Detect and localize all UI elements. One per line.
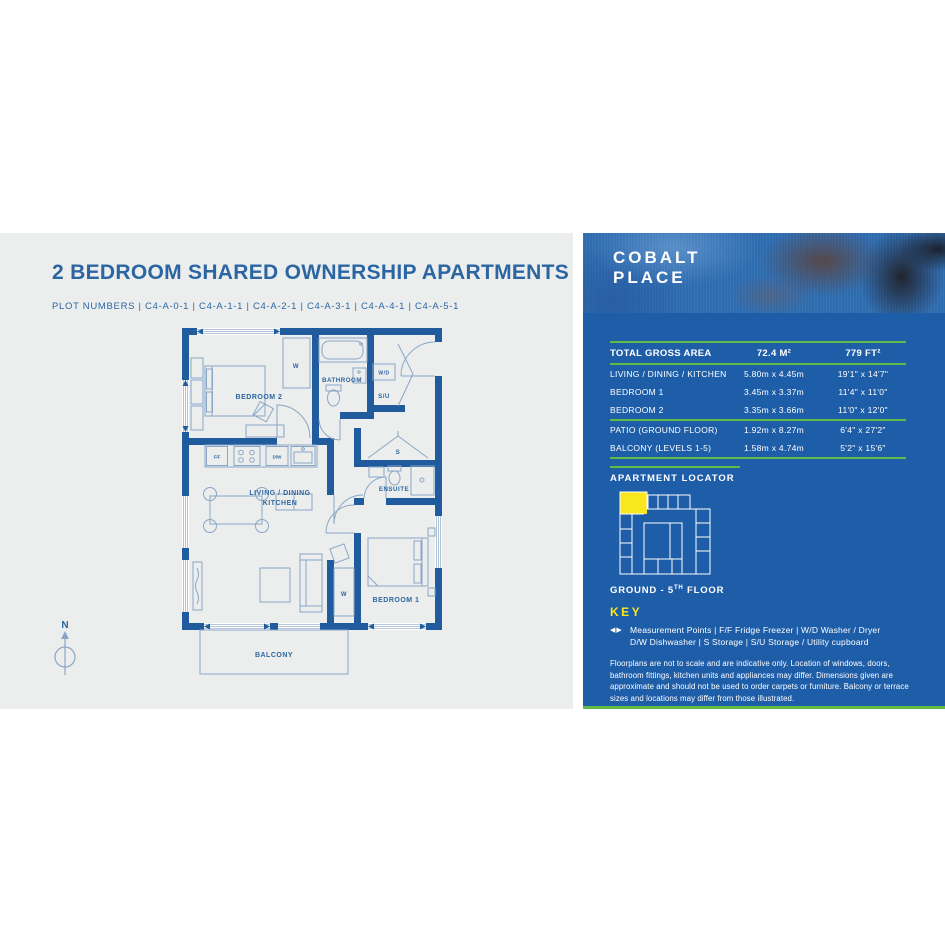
- page-title: 2 BEDROOM SHARED OWNERSHIP APARTMENTS: [52, 261, 569, 285]
- compass-north-label: N: [61, 620, 68, 631]
- brand-line-2: PLACE: [613, 268, 701, 288]
- table-header-imperial: 779 FT²: [820, 348, 906, 359]
- floor-plan: BEDROOM 2 BATHROOM W W/D S/U S ENSUITE L…: [182, 328, 462, 678]
- label-balcony: BALCONY: [255, 652, 293, 659]
- brand-line-1: COBALT: [613, 248, 701, 268]
- label-storage-utility: S/U: [378, 393, 390, 400]
- locator-divider: [610, 466, 740, 468]
- brand-name: COBALT PLACE: [613, 248, 701, 288]
- brand-header: COBALT PLACE: [583, 233, 945, 313]
- floor-range-label: GROUND - 5TH FLOOR: [610, 585, 724, 596]
- plot-numbers: PLOT NUMBERS | C4-A-0-1 | C4-A-1-1 | C4-…: [52, 301, 459, 312]
- info-panel: COBALT PLACE TOTAL GROSS AREA 72.4 M² 77…: [583, 233, 945, 709]
- key-line-2: D/W Dishwasher | S Storage | S/U Storage…: [630, 636, 880, 648]
- table-header-label: TOTAL GROSS AREA: [610, 348, 728, 359]
- table-row: BEDROOM 1 3.45m x 3.37m 11'4" x 11'0": [610, 383, 906, 401]
- label-fridge-freezer: F/F: [214, 455, 221, 460]
- label-storage: S: [396, 449, 401, 456]
- disclaimer-text: Floorplans are not to scale and are indi…: [610, 658, 912, 704]
- label-ensuite: ENSUITE: [379, 486, 409, 493]
- table-header-metric: 72.4 M²: [728, 348, 820, 359]
- key-heading: KEY: [610, 605, 642, 619]
- key-legend: ◀▶ Measurement Points | F/F Fridge Freez…: [610, 624, 880, 648]
- table-group-outdoor: PATIO (GROUND FLOOR) 1.92m x 8.27m 6'4" …: [610, 419, 906, 459]
- label-bathroom: BATHROOM: [322, 377, 362, 384]
- table-row: BEDROOM 2 3.35m x 3.66m 11'0" x 12'0": [610, 401, 906, 419]
- label-bedroom-1: BEDROOM 1: [373, 597, 420, 604]
- floorplan-panel: 2 BEDROOM SHARED OWNERSHIP APARTMENTS PL…: [0, 233, 573, 709]
- label-washer-dryer: W/D: [378, 371, 389, 377]
- label-kitchen: KITCHEN: [263, 500, 298, 507]
- table-row: BALCONY (LEVELS 1-5) 1.58m x 4.74m 5'2" …: [610, 439, 906, 457]
- apartment-locator-map: [610, 487, 722, 580]
- key-line-1: Measurement Points | F/F Fridge Freezer …: [630, 624, 880, 636]
- dimensions-table: TOTAL GROSS AREA 72.4 M² 779 FT² LIVING …: [610, 341, 906, 459]
- label-wardrobe: W: [293, 364, 299, 370]
- label-wardrobe-2: W: [341, 592, 347, 598]
- brochure-page: 2 BEDROOM SHARED OWNERSHIP APARTMENTS PL…: [0, 0, 945, 945]
- apartment-locator-heading: APARTMENT LOCATOR: [610, 473, 735, 484]
- label-bedroom-2: BEDROOM 2: [236, 394, 283, 401]
- label-living-dining: LIVING / DINING: [249, 490, 310, 497]
- table-row: PATIO (GROUND FLOOR) 1.92m x 8.27m 6'4" …: [610, 421, 906, 439]
- compass-icon: N: [45, 617, 85, 679]
- table-group-rooms: LIVING / DINING / KITCHEN 5.80m x 4.45m …: [610, 365, 906, 419]
- table-row: LIVING / DINING / KITCHEN 5.80m x 4.45m …: [610, 365, 906, 383]
- label-dishwasher: D/W: [273, 455, 283, 460]
- table-header-row: TOTAL GROSS AREA 72.4 M² 779 FT²: [610, 341, 906, 365]
- plan-walls: [182, 328, 442, 630]
- measurement-points-icon: ◀▶: [610, 624, 630, 648]
- locator-highlight-unit: [620, 492, 647, 514]
